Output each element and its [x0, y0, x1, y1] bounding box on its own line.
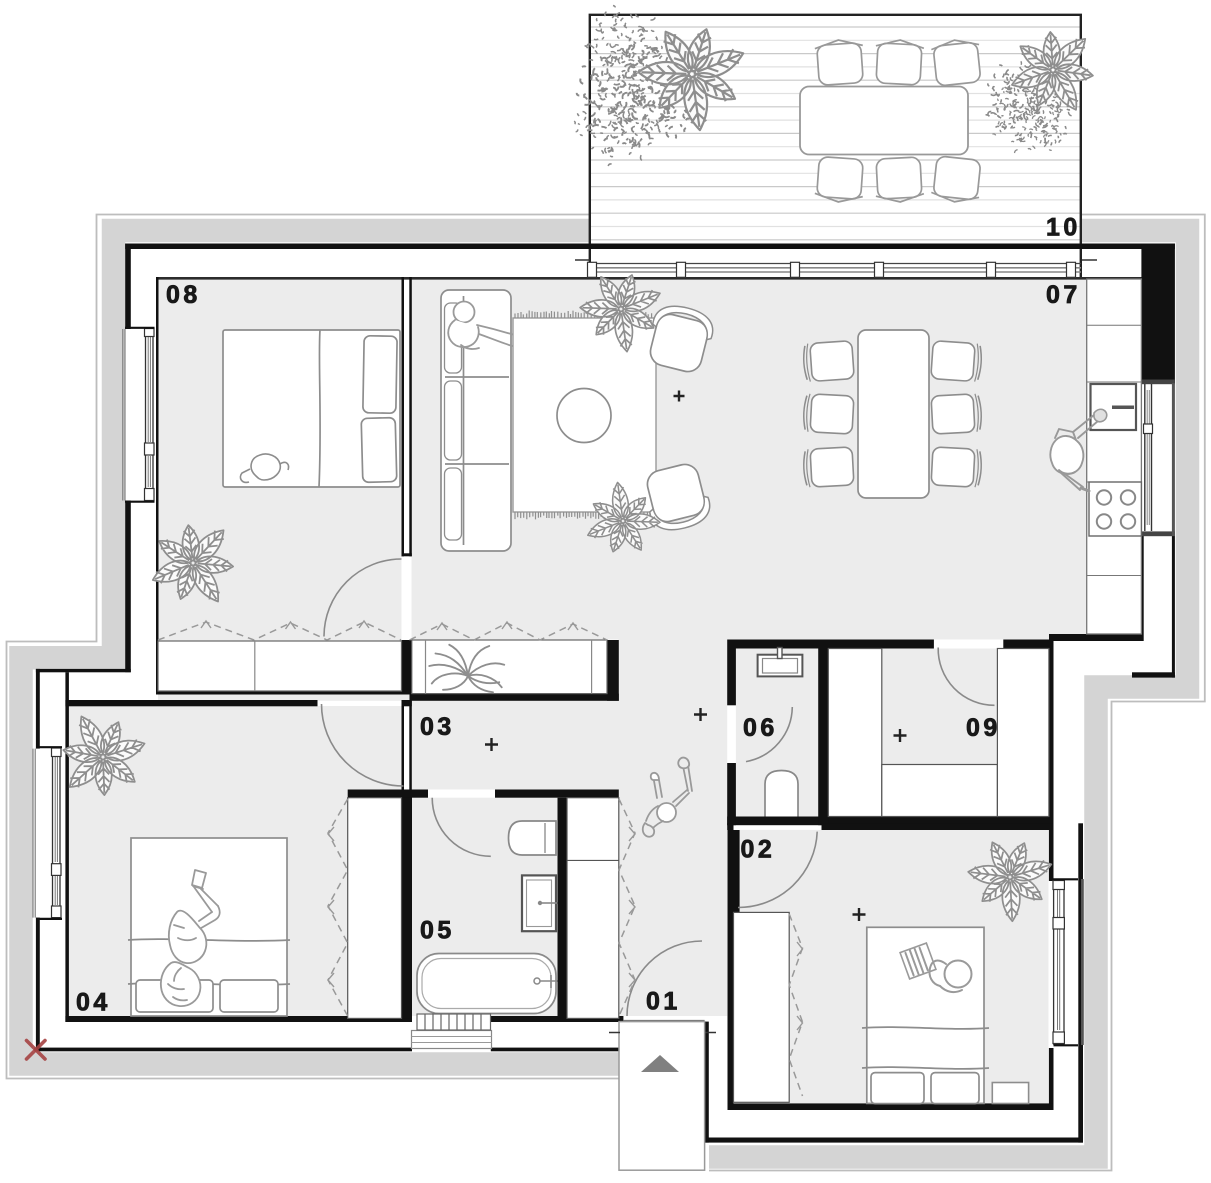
svg-text:10: 10	[1046, 214, 1081, 242]
svg-text:09: 09	[966, 714, 1001, 742]
svg-text:06: 06	[743, 714, 778, 742]
svg-text:02: 02	[741, 836, 776, 864]
svg-text:01: 01	[646, 988, 681, 1016]
svg-text:07: 07	[1046, 281, 1081, 309]
svg-text:03: 03	[420, 713, 455, 741]
svg-text:05: 05	[420, 917, 455, 945]
svg-text:08: 08	[166, 281, 201, 309]
svg-text:04: 04	[76, 989, 111, 1017]
